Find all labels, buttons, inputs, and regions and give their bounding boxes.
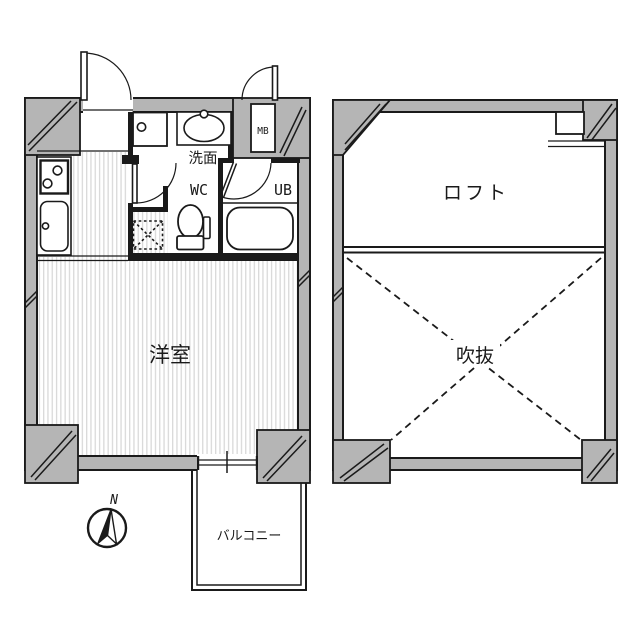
label-meter-box: MB bbox=[257, 126, 269, 137]
label-wc: WC bbox=[190, 181, 208, 199]
washbasin-icon bbox=[177, 110, 231, 145]
stove-icon bbox=[41, 161, 69, 194]
loft-floor-plan: ロフト 吹抜 bbox=[333, 100, 617, 483]
label-loft: ロフト bbox=[443, 183, 509, 204]
floor-plan-canvas: 洋室 洗面 WC UB MB バルコニー N bbox=[0, 0, 640, 640]
loft-edge-divider bbox=[343, 247, 605, 253]
bath-door bbox=[221, 162, 272, 199]
loft-corner-notch bbox=[556, 112, 584, 134]
floor-plan-image: 洋室 洗面 WC UB MB バルコニー N bbox=[0, 0, 640, 640]
label-unit-bath: UB bbox=[274, 181, 292, 199]
toilet-icon bbox=[177, 205, 210, 250]
entrance-door bbox=[81, 52, 131, 100]
label-void: 吹抜 bbox=[456, 345, 494, 367]
label-room: 洋室 bbox=[149, 344, 191, 367]
compass: N bbox=[88, 493, 126, 547]
loft-outer-walls bbox=[333, 100, 617, 470]
kitchen-counter bbox=[37, 157, 71, 255]
meter-box-door bbox=[242, 66, 278, 100]
bathtub-icon bbox=[227, 208, 293, 250]
kitchen-sink-icon bbox=[41, 202, 69, 252]
washing-machine-icon bbox=[133, 113, 167, 147]
label-balcony: バルコニー bbox=[217, 528, 282, 543]
label-north: N bbox=[109, 493, 118, 508]
label-washbasin: 洗面 bbox=[189, 150, 218, 167]
washroom-door bbox=[133, 163, 177, 203]
balcony: バルコニー bbox=[192, 470, 306, 590]
unit-floor-plan: 洋室 洗面 WC UB MB バルコニー bbox=[25, 52, 310, 590]
loft-structural-columns bbox=[333, 100, 617, 483]
